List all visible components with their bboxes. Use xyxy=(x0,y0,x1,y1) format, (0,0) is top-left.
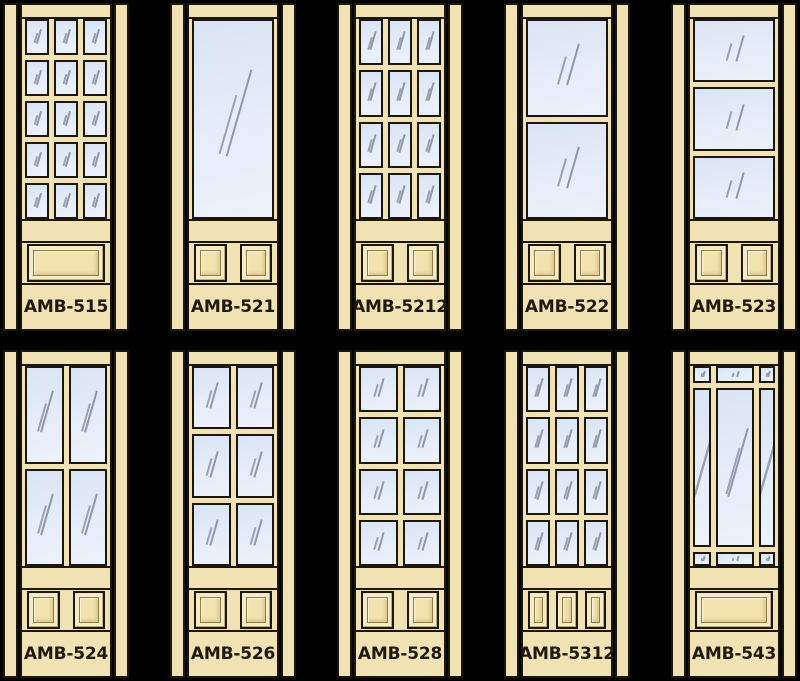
raised-panel-field xyxy=(33,597,54,623)
door-row-bottom: AMB-524 AMB-526 AMB-528 xyxy=(3,350,797,678)
glass-pane xyxy=(83,101,107,137)
door-figure-amb-5312[interactable]: AMB-5312 xyxy=(504,350,630,678)
door-label: AMB-523 xyxy=(690,285,778,329)
glass-pane xyxy=(54,183,78,219)
glass-pane xyxy=(584,417,608,463)
door-label: AMB-524 xyxy=(22,632,110,676)
door-right-stile xyxy=(615,350,630,678)
raised-panel-field xyxy=(701,597,767,623)
door-left-stile xyxy=(337,350,352,678)
door-label: AMB-526 xyxy=(189,632,277,676)
glass-pane xyxy=(526,520,550,566)
door-top-rail xyxy=(690,5,778,17)
door-right-stile xyxy=(782,3,797,331)
glass-pane xyxy=(236,366,275,429)
door-glass-area xyxy=(189,364,277,568)
glass-pane xyxy=(693,87,775,150)
door-top-rail xyxy=(356,5,444,17)
raised-panel xyxy=(73,591,106,629)
glass-pane xyxy=(555,366,579,412)
door-panel-row xyxy=(22,588,110,632)
glass-pane xyxy=(555,417,579,463)
door-right-stile xyxy=(448,3,463,331)
glass-pane xyxy=(25,60,49,96)
raised-panel-field xyxy=(534,597,543,623)
raised-panel-field xyxy=(413,597,434,623)
glass-pane xyxy=(54,101,78,137)
glass-pane xyxy=(388,70,412,116)
door-glass-area xyxy=(690,17,778,221)
door-top-rail xyxy=(189,5,277,17)
glass-pane xyxy=(192,19,274,219)
door-lock-rail xyxy=(189,221,277,241)
glass-pane xyxy=(403,469,442,515)
door-slab: AMB-524 xyxy=(20,350,112,678)
door-slab: AMB-528 xyxy=(354,350,446,678)
door-top-rail xyxy=(22,5,110,17)
door-left-stile xyxy=(337,3,352,331)
glass-pane xyxy=(584,520,608,566)
glass-pane xyxy=(359,173,383,219)
raised-panel xyxy=(361,591,394,629)
door-figure-amb-524[interactable]: AMB-524 xyxy=(3,350,129,678)
glass-pane xyxy=(526,366,550,412)
door-glass-area xyxy=(356,17,444,221)
glass-pane xyxy=(25,366,64,464)
glass-pane xyxy=(83,19,107,55)
door-figure-amb-521[interactable]: AMB-521 xyxy=(170,3,296,331)
door-lock-rail xyxy=(690,221,778,241)
door-panel-row xyxy=(356,241,444,285)
glass-pane xyxy=(526,19,608,117)
raised-panel xyxy=(528,591,549,629)
glass-pane xyxy=(359,417,398,463)
glass-pane xyxy=(359,70,383,116)
glass-pane xyxy=(716,366,754,383)
raised-panel-field xyxy=(79,597,100,623)
raised-panel xyxy=(240,244,273,282)
door-slab: AMB-5212 xyxy=(354,3,446,331)
glass-pane xyxy=(693,156,775,219)
door-glass-area xyxy=(22,364,110,568)
door-right-stile xyxy=(281,350,296,678)
glass-pane xyxy=(359,469,398,515)
glass-pane xyxy=(54,19,78,55)
door-lock-rail xyxy=(22,221,110,241)
raised-panel-field xyxy=(580,250,601,276)
glass-pane xyxy=(759,388,775,547)
glass-pane xyxy=(388,122,412,168)
glass-pane xyxy=(25,142,49,178)
raised-panel xyxy=(27,591,60,629)
door-slab: AMB-543 xyxy=(688,350,780,678)
door-label: AMB-528 xyxy=(356,632,444,676)
door-label: AMB-543 xyxy=(690,632,778,676)
glass-pane xyxy=(359,366,398,412)
glass-pane xyxy=(83,142,107,178)
raised-panel xyxy=(528,244,561,282)
door-left-stile xyxy=(170,3,185,331)
glass-pane xyxy=(236,434,275,497)
raised-panel-field xyxy=(33,250,99,276)
raised-panel-field xyxy=(200,597,221,623)
door-left-stile xyxy=(671,3,686,331)
glass-pane xyxy=(359,19,383,65)
glass-pane xyxy=(417,173,441,219)
raised-panel-field xyxy=(701,250,722,276)
door-slab: AMB-522 xyxy=(521,3,613,331)
raised-panel xyxy=(407,244,440,282)
door-glass-area xyxy=(523,17,611,221)
door-slab: AMB-5312 xyxy=(521,350,613,678)
raised-panel-field xyxy=(246,250,267,276)
door-figure-amb-528[interactable]: AMB-528 xyxy=(337,350,463,678)
glass-pane xyxy=(25,101,49,137)
door-figure-amb-526[interactable]: AMB-526 xyxy=(170,350,296,678)
door-row-top: AMB-515 AMB-521 AMB-5212 xyxy=(3,3,797,331)
door-right-stile xyxy=(114,350,129,678)
glass-pane xyxy=(403,520,442,566)
door-panel-row xyxy=(22,241,110,285)
glass-pane xyxy=(388,173,412,219)
glass-pane xyxy=(417,70,441,116)
raised-panel-field xyxy=(367,250,388,276)
raised-panel-field xyxy=(747,250,768,276)
door-lock-rail xyxy=(523,568,611,588)
door-lock-rail xyxy=(690,568,778,588)
door-lock-rail xyxy=(356,221,444,241)
door-glass-area xyxy=(356,364,444,568)
glass-pane xyxy=(555,520,579,566)
door-slab: AMB-515 xyxy=(20,3,112,331)
door-top-rail xyxy=(690,352,778,364)
door-panel-row xyxy=(523,241,611,285)
raised-panel xyxy=(585,591,606,629)
door-label: AMB-5312 xyxy=(523,632,611,676)
door-top-rail xyxy=(523,5,611,17)
door-label: AMB-521 xyxy=(189,285,277,329)
glass-pane xyxy=(69,366,108,464)
raised-panel xyxy=(695,591,773,629)
glass-pane xyxy=(693,388,711,547)
glass-pane xyxy=(716,388,754,547)
glass-pane xyxy=(25,469,64,567)
door-lock-rail xyxy=(523,221,611,241)
door-panel-row xyxy=(189,241,277,285)
door-slab: AMB-521 xyxy=(187,3,279,331)
door-label: AMB-515 xyxy=(22,285,110,329)
door-right-stile xyxy=(448,350,463,678)
door-left-stile xyxy=(671,350,686,678)
glass-pane xyxy=(526,469,550,515)
glass-pane xyxy=(25,19,49,55)
door-figure-amb-543[interactable]: AMB-543 xyxy=(671,350,797,678)
glass-pane xyxy=(54,60,78,96)
door-top-rail xyxy=(523,352,611,364)
door-glass-area xyxy=(189,17,277,221)
door-left-stile xyxy=(3,350,18,678)
door-lock-rail xyxy=(356,568,444,588)
door-catalog: AMB-515 AMB-521 AMB-5212 xyxy=(0,0,800,681)
door-glass-area xyxy=(22,17,110,221)
door-right-stile xyxy=(114,3,129,331)
glass-pane xyxy=(526,417,550,463)
door-label: AMB-522 xyxy=(523,285,611,329)
door-panel-row xyxy=(523,588,611,632)
raised-panel-field xyxy=(367,597,388,623)
door-left-stile xyxy=(504,3,519,331)
glass-pane xyxy=(403,366,442,412)
door-left-stile xyxy=(504,350,519,678)
glass-pane xyxy=(584,469,608,515)
door-glass-area xyxy=(523,364,611,568)
door-figure-amb-5212[interactable]: AMB-5212 xyxy=(337,3,463,331)
glass-pane xyxy=(359,122,383,168)
glass-pane xyxy=(69,469,108,567)
door-right-stile xyxy=(782,350,797,678)
raised-panel-field xyxy=(562,597,571,623)
raised-panel-field xyxy=(200,250,221,276)
raised-panel xyxy=(194,244,227,282)
glass-pane xyxy=(192,434,231,497)
glass-pane xyxy=(359,520,398,566)
door-slab: AMB-526 xyxy=(187,350,279,678)
door-figure-amb-515[interactable]: AMB-515 xyxy=(3,3,129,331)
glass-pane xyxy=(403,417,442,463)
raised-panel xyxy=(27,244,105,282)
raised-panel xyxy=(361,244,394,282)
glass-pane xyxy=(417,122,441,168)
door-top-rail xyxy=(356,352,444,364)
raised-panel xyxy=(741,244,774,282)
glass-pane xyxy=(693,552,711,566)
door-right-stile xyxy=(615,3,630,331)
raised-panel xyxy=(240,591,273,629)
door-label: AMB-5212 xyxy=(356,285,444,329)
raised-panel-field xyxy=(534,250,555,276)
glass-pane xyxy=(417,19,441,65)
glass-pane xyxy=(236,503,275,566)
glass-pane xyxy=(388,19,412,65)
door-figure-amb-522[interactable]: AMB-522 xyxy=(504,3,630,331)
door-right-stile xyxy=(281,3,296,331)
door-top-rail xyxy=(22,352,110,364)
door-panel-row xyxy=(690,241,778,285)
glass-pane xyxy=(555,469,579,515)
glass-pane xyxy=(693,366,711,383)
raised-panel xyxy=(556,591,577,629)
raised-panel-field xyxy=(246,597,267,623)
door-left-stile xyxy=(170,350,185,678)
glass-pane xyxy=(192,366,231,429)
glass-pane xyxy=(759,366,775,383)
raised-panel-field xyxy=(591,597,600,623)
raised-panel xyxy=(574,244,607,282)
glass-pane xyxy=(716,552,754,566)
raised-panel-field xyxy=(413,250,434,276)
glass-pane xyxy=(584,366,608,412)
raised-panel xyxy=(407,591,440,629)
door-panel-row xyxy=(690,588,778,632)
door-left-stile xyxy=(3,3,18,331)
raised-panel xyxy=(194,591,227,629)
glass-pane xyxy=(759,552,775,566)
door-slab: AMB-523 xyxy=(688,3,780,331)
glass-pane xyxy=(192,503,231,566)
glass-pane xyxy=(83,183,107,219)
door-glass-area xyxy=(690,364,778,568)
glass-pane xyxy=(526,122,608,220)
raised-panel xyxy=(695,244,728,282)
door-panel-row xyxy=(189,588,277,632)
door-lock-rail xyxy=(189,568,277,588)
glass-pane xyxy=(54,142,78,178)
door-figure-amb-523[interactable]: AMB-523 xyxy=(671,3,797,331)
glass-pane xyxy=(25,183,49,219)
door-lock-rail xyxy=(22,568,110,588)
glass-pane xyxy=(693,19,775,82)
glass-pane xyxy=(83,60,107,96)
door-top-rail xyxy=(189,352,277,364)
door-panel-row xyxy=(356,588,444,632)
